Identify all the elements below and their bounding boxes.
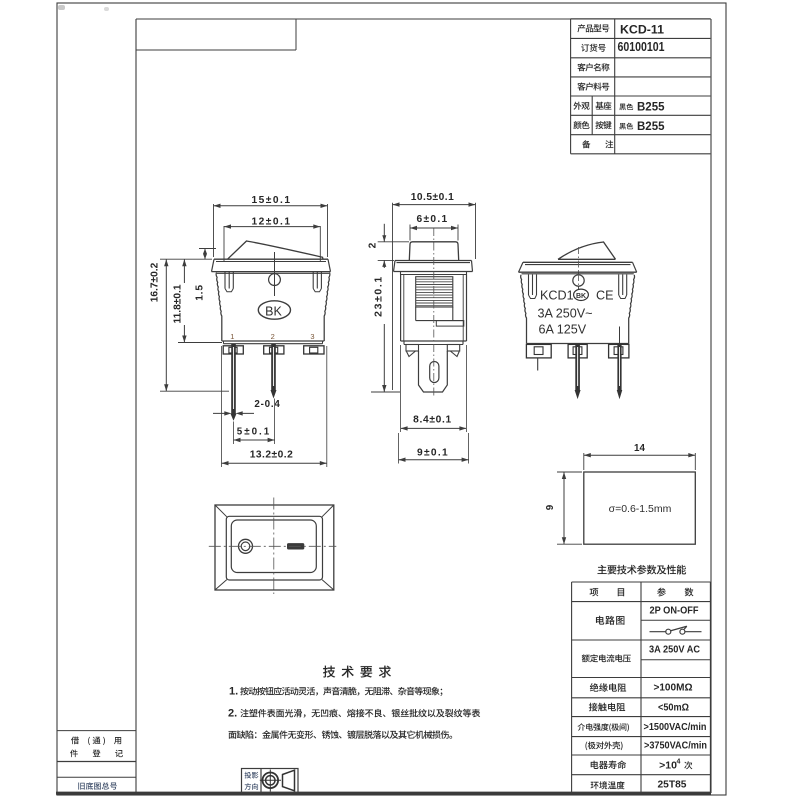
svg-text:2-0.4: 2-0.4 — [254, 399, 280, 410]
svg-text:6±0.1: 6±0.1 — [417, 214, 449, 225]
svg-text:11.8±0.1: 11.8±0.1 — [173, 284, 184, 323]
svg-text:3A 250V~: 3A 250V~ — [538, 307, 593, 321]
svg-text:>100MΩ: >100MΩ — [654, 682, 693, 694]
svg-text:>1500VAC/min: >1500VAC/min — [644, 722, 707, 733]
svg-text:BK: BK — [576, 293, 586, 300]
svg-text:σ=0.6-1.5mm: σ=0.6-1.5mm — [609, 503, 672, 515]
svg-text:2.: 2. — [228, 708, 237, 720]
svg-text:2P ON-OFF: 2P ON-OFF — [650, 605, 700, 617]
svg-text:12±0.1: 12±0.1 — [251, 217, 291, 228]
svg-text:2: 2 — [271, 332, 275, 341]
svg-text:15±0.1: 15±0.1 — [251, 195, 291, 206]
svg-text:23±0.1: 23±0.1 — [373, 275, 385, 317]
svg-text:1.5: 1.5 — [195, 284, 206, 301]
svg-text:>10: >10 — [659, 760, 677, 772]
svg-text:CE: CE — [596, 289, 614, 303]
svg-text:5±0.1: 5±0.1 — [237, 426, 271, 437]
svg-text:3A 250V AC: 3A 250V AC — [649, 644, 700, 656]
svg-text:BK: BK — [265, 304, 282, 318]
svg-text:25T85: 25T85 — [658, 779, 687, 791]
svg-text:B255: B255 — [637, 102, 665, 114]
svg-text:3: 3 — [310, 332, 314, 341]
svg-text:9: 9 — [545, 504, 556, 510]
svg-text:9±0.1: 9±0.1 — [417, 448, 449, 459]
svg-text:13.2±0.2: 13.2±0.2 — [250, 449, 294, 460]
svg-text:1: 1 — [230, 332, 234, 341]
svg-text:>3750VAC/min: >3750VAC/min — [644, 741, 707, 752]
svg-text:B255: B255 — [637, 121, 665, 133]
svg-text:KCD1: KCD1 — [540, 289, 574, 303]
svg-text:10.5±0.1: 10.5±0.1 — [411, 192, 455, 203]
svg-text:14: 14 — [634, 443, 645, 454]
svg-text:60100101: 60100101 — [618, 39, 665, 54]
svg-text:16.7±0.2: 16.7±0.2 — [150, 262, 161, 302]
svg-text:KCD-11: KCD-11 — [620, 23, 664, 37]
svg-text:2: 2 — [368, 242, 379, 248]
svg-text:1.: 1. — [229, 686, 238, 698]
svg-text:<50mΩ: <50mΩ — [658, 702, 689, 714]
svg-text:6A 125V: 6A 125V — [539, 323, 587, 337]
svg-text:8.4±0.1: 8.4±0.1 — [413, 415, 452, 426]
svg-text:4: 4 — [677, 759, 681, 766]
